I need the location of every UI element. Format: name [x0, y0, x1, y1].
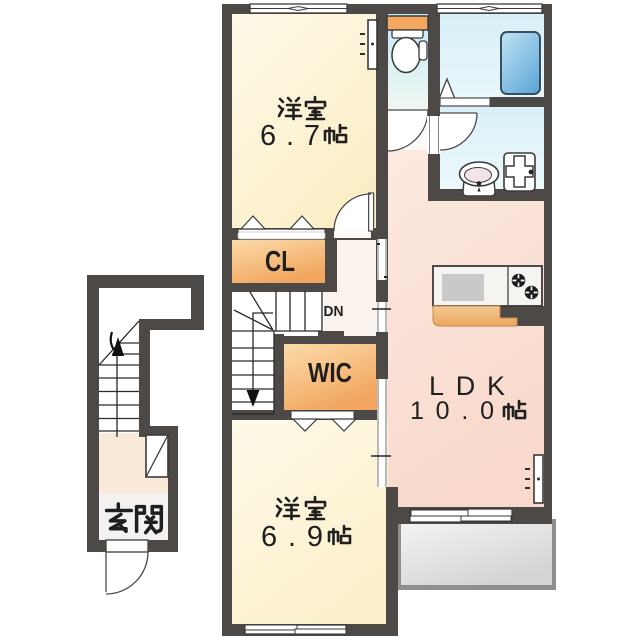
- svg-text:6.7: 6.7: [260, 120, 320, 152]
- svg-text:6.9: 6.9: [261, 521, 323, 553]
- svg-text:CL: CL: [265, 246, 295, 278]
- svg-text:DN: DN: [324, 303, 344, 320]
- svg-text:WIC: WIC: [308, 357, 352, 388]
